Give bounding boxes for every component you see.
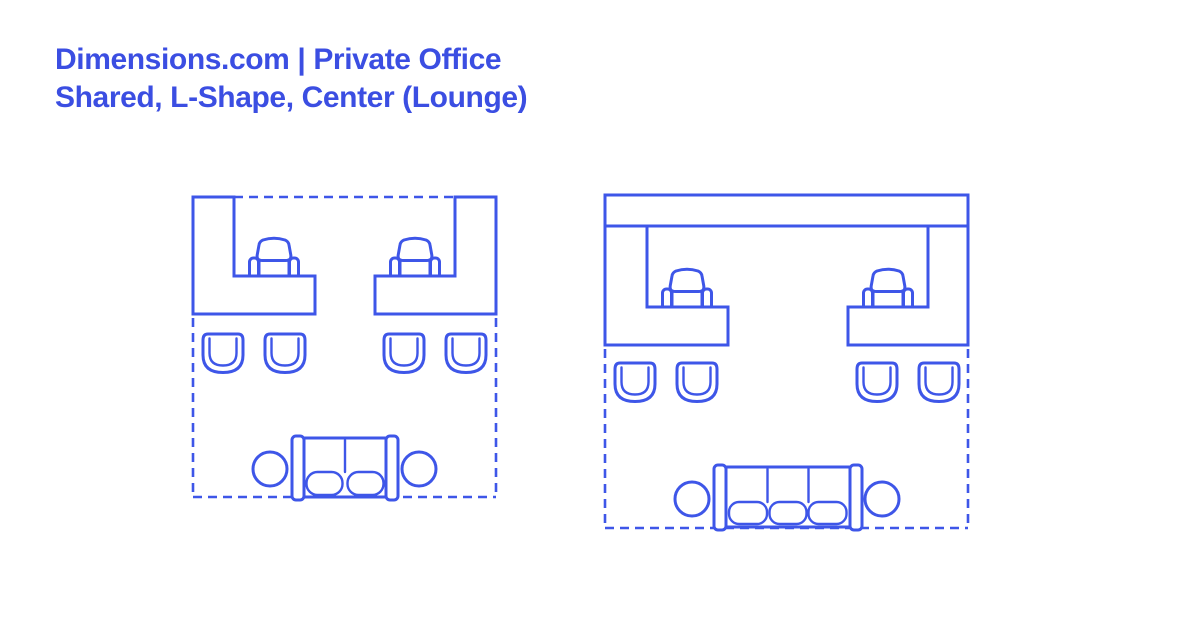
desk-u-shape-with-counter	[605, 195, 968, 345]
side-table	[402, 452, 436, 486]
desk-l-shape-left	[193, 197, 315, 314]
floor-plan-canvas	[0, 0, 1200, 630]
floorplan-compact	[193, 197, 496, 500]
guest-chair	[203, 334, 243, 373]
floorplan-wide	[605, 195, 968, 530]
guest-chair	[677, 363, 717, 402]
side-table	[675, 482, 709, 516]
page-root: Dimensions.com | Private Office Shared, …	[0, 0, 1200, 630]
guest-chair	[265, 334, 305, 373]
guest-chair	[857, 363, 897, 402]
side-table	[865, 482, 899, 516]
guest-chair	[919, 363, 959, 402]
side-table	[253, 452, 287, 486]
guest-chair	[446, 334, 486, 373]
guest-chair	[384, 334, 424, 373]
sofa-three-seat	[714, 465, 862, 530]
sofa-loveseat	[292, 436, 398, 500]
desk-l-shape-right	[375, 197, 496, 314]
guest-chair	[615, 363, 655, 402]
